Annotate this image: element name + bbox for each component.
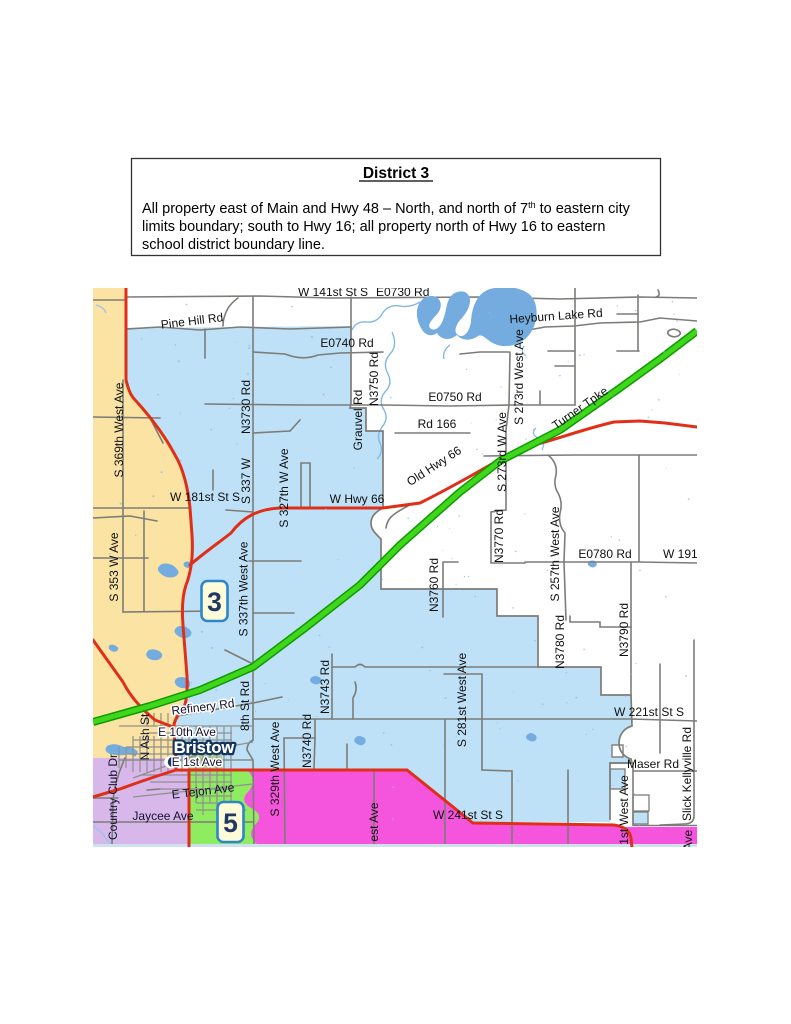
- svg-text:S 257th West Ave: S 257th West Ave: [548, 506, 562, 601]
- svg-text:N3740 Rd: N3740 Rd: [300, 714, 314, 768]
- svg-text:E0780 Rd: E0780 Rd: [578, 547, 631, 561]
- svg-text:N Ash St: N Ash St: [138, 713, 152, 760]
- svg-text:1st West Ave: 1st West Ave: [617, 775, 631, 845]
- svg-text:S 327th W Ave: S 327th W Ave: [277, 448, 291, 527]
- svg-text:N3730 Rd: N3730 Rd: [239, 380, 253, 434]
- svg-text:Bristow: Bristow: [174, 739, 235, 757]
- svg-text:W 221st St S: W 221st St S: [614, 705, 684, 719]
- svg-text:W 241st St S: W 241st St S: [433, 808, 503, 822]
- svg-text:E 1st Ave: E 1st Ave: [172, 755, 223, 769]
- svg-text:S 353 W Ave: S 353 W Ave: [107, 532, 121, 601]
- svg-text:S 329th West Ave: S 329th West Ave: [268, 721, 282, 816]
- svg-text:N3790 Rd: N3790 Rd: [617, 603, 631, 657]
- svg-text:Country Club Dr: Country Club Dr: [106, 754, 120, 840]
- svg-text:5: 5: [223, 808, 238, 838]
- svg-text:S 281st West Ave: S 281st West Ave: [455, 653, 469, 748]
- svg-text:District 3: District 3: [363, 165, 430, 182]
- svg-text:W 181st St S: W 181st St S: [170, 490, 240, 504]
- svg-text:est Ave: est Ave: [367, 802, 381, 841]
- svg-text:N3750 Rd: N3750 Rd: [367, 352, 381, 406]
- svg-text:S 337th West Ave: S 337th West Ave: [237, 541, 251, 636]
- svg-text:Maser Rd: Maser Rd: [627, 757, 679, 771]
- svg-text:Jaycee Ave: Jaycee Ave: [132, 809, 193, 823]
- svg-text:Slick Kellyville Rd: Slick Kellyville Rd: [680, 727, 694, 821]
- svg-text:Grauvel Rd: Grauvel Rd: [351, 390, 365, 451]
- svg-text:E0750 Rd: E0750 Rd: [428, 390, 481, 404]
- svg-text:school district boundary line.: school district boundary line.: [142, 237, 325, 253]
- svg-text:N3743 Rd: N3743 Rd: [318, 660, 332, 714]
- svg-text:N3780 Rd: N3780 Rd: [553, 615, 567, 669]
- svg-text:S 369th West Ave: S 369th West Ave: [112, 382, 126, 477]
- svg-text:S 337 W: S 337 W: [239, 457, 253, 504]
- svg-text:N3770 Rd: N3770 Rd: [492, 509, 506, 563]
- svg-text:3: 3: [207, 587, 222, 617]
- svg-text:S 273rd West Ave: S 273rd West Ave: [512, 329, 526, 425]
- svg-text:Rd 166: Rd 166: [418, 417, 457, 431]
- svg-text:limits boundary; south to Hwy: limits boundary; south to Hwy 16; all pr…: [142, 219, 605, 235]
- svg-text:N3760 Rd: N3760 Rd: [427, 558, 441, 612]
- svg-text:W Hwy 66: W Hwy 66: [330, 492, 385, 506]
- svg-text:All property east of Main and: All property east of Main and Hwy 48 – N…: [142, 200, 631, 217]
- svg-text:E0740 Rd: E0740 Rd: [320, 336, 373, 350]
- svg-text:E 10th Ave: E 10th Ave: [158, 725, 216, 739]
- svg-text:8th St Rd: 8th St Rd: [238, 681, 252, 731]
- svg-text:S 273rd W Ave: S 273rd W Ave: [495, 412, 509, 492]
